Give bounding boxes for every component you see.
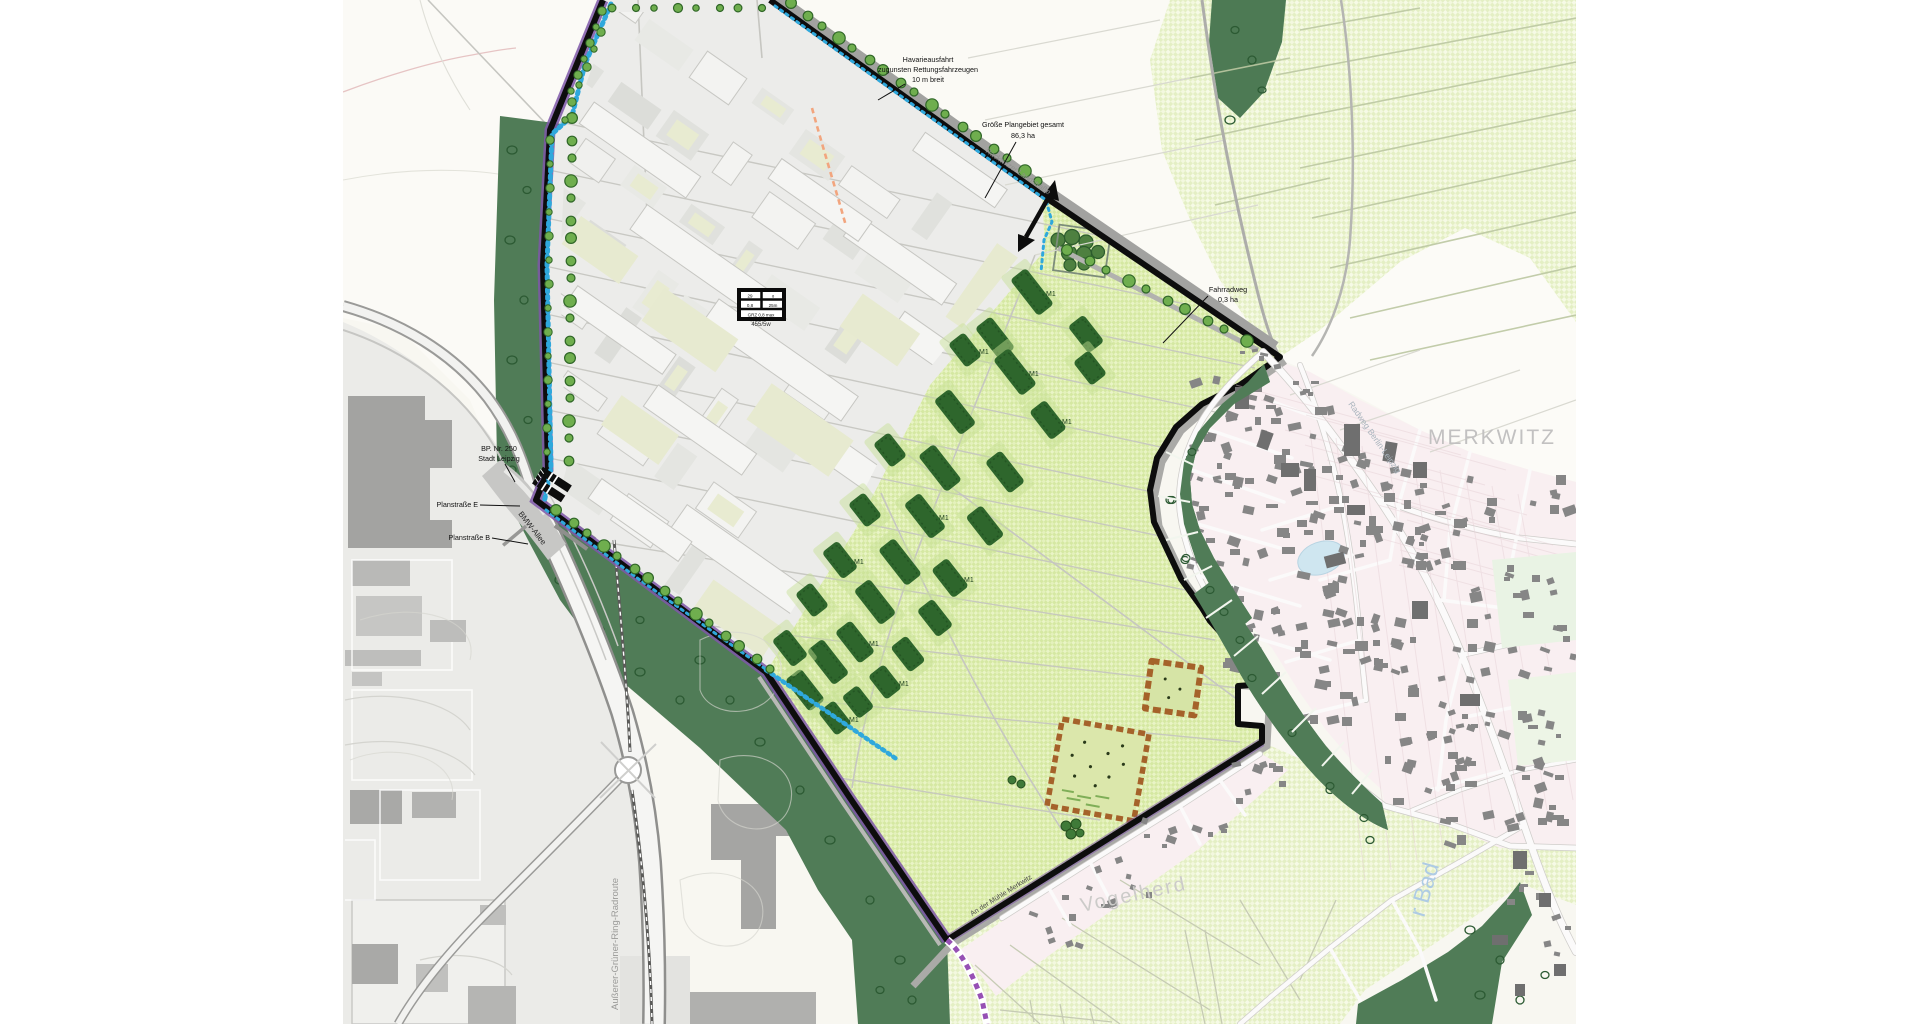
- svg-text:M1: M1: [1062, 419, 1072, 426]
- svg-text:Stadt Leipzig: Stadt Leipzig: [478, 454, 520, 463]
- svg-text:Planstraße B: Planstraße B: [448, 533, 490, 542]
- svg-text:M1: M1: [854, 559, 864, 566]
- svg-text:M1: M1: [939, 515, 949, 522]
- svg-text:M1: M1: [899, 681, 909, 688]
- svg-text:zugunsten Rettungsfahrzeugen: zugunsten Rettungsfahrzeugen: [878, 65, 978, 74]
- svg-text:MERKWITZ: MERKWITZ: [1428, 426, 1556, 449]
- svg-text:10 m breit: 10 m breit: [912, 75, 944, 84]
- svg-text:Fahrradweg: Fahrradweg: [1209, 285, 1247, 294]
- svg-text:25m: 25m: [769, 303, 778, 308]
- svg-text:Außerer-Grüner-Ring-Radroute: Außerer-Grüner-Ring-Radroute: [610, 878, 621, 1010]
- svg-text:M1: M1: [979, 349, 989, 356]
- svg-text:M1: M1: [964, 577, 974, 584]
- svg-text:0,8: 0,8: [747, 303, 754, 308]
- svg-text:BP. Nr. 250: BP. Nr. 250: [481, 444, 517, 453]
- svg-text:GRZ 0,8 max: GRZ 0,8 max: [748, 313, 776, 318]
- svg-text:M1: M1: [869, 641, 879, 648]
- svg-text:Havarieausfahrt: Havarieausfahrt: [903, 55, 954, 64]
- svg-text:M1: M1: [1029, 371, 1039, 378]
- svg-text:86,3 ha: 86,3 ha: [1011, 131, 1035, 140]
- svg-text:Planstraße E: Planstraße E: [436, 500, 478, 509]
- svg-text:0,3 ha: 0,3 ha: [1218, 295, 1238, 304]
- svg-text:Größe Plangebiet gesamt: Größe Plangebiet gesamt: [982, 120, 1064, 129]
- svg-text:455/5w: 455/5w: [751, 322, 771, 328]
- svg-text:M1: M1: [1046, 291, 1056, 298]
- svg-text:M1: M1: [849, 717, 859, 724]
- svg-text:29: 29: [747, 294, 753, 299]
